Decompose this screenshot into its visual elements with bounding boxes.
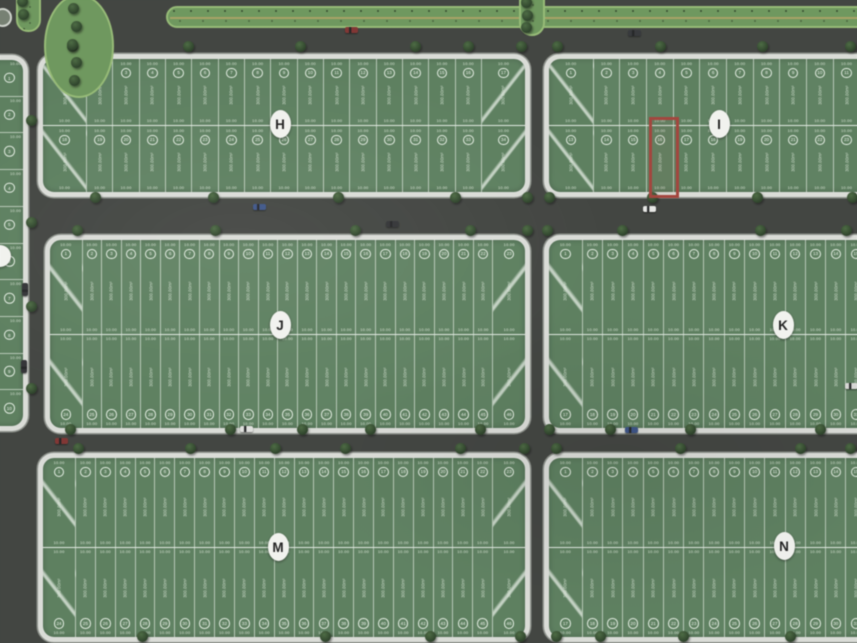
plot-M-39[interactable]: 10.0039300.00m²10.00 bbox=[354, 548, 374, 637]
plot-I-14[interactable]: 10.0014300.00m²10.00 bbox=[594, 126, 621, 192]
plot-K-13[interactable]: 10.0013300.00m²10.00 bbox=[806, 240, 826, 334]
plot-J-18[interactable]: 10.0018300.00m²10.00 bbox=[396, 240, 416, 334]
plot-width-label: 10.00 bbox=[179, 631, 190, 635]
plot-M-30[interactable]: 10.0030300.00m²10.00 bbox=[175, 548, 195, 637]
plot-J-17[interactable]: 10.0017300.00m²10.00 bbox=[376, 240, 396, 334]
plot-width-label: 10.00 bbox=[380, 328, 391, 332]
plot-J-34[interactable]: 10.0034300.00m²10.00 bbox=[259, 335, 279, 429]
plot-M-13[interactable]: 10.0013300.00m²10.00 bbox=[295, 458, 315, 547]
plot-M-15[interactable]: 10.0015300.00m²10.00 bbox=[334, 458, 354, 547]
plot-H-28[interactable]: 10.0028300.00m²10.00 bbox=[324, 126, 350, 192]
plot-area-label: 300.00m² bbox=[833, 497, 838, 516]
plot-left-9[interactable]: 910.00 bbox=[0, 354, 23, 391]
plot-H-24[interactable]: 10.0024300.00m²10.00 bbox=[219, 126, 245, 192]
plot-width-label: 10.00 bbox=[378, 631, 389, 635]
plot-H-12[interactable]: 10.0012300.00m²10.00 bbox=[350, 59, 376, 125]
plot-M-5[interactable]: 10.005300.00m²10.00 bbox=[136, 458, 156, 547]
tree-icon bbox=[595, 631, 606, 642]
plot-N-23[interactable]: 10.0023300.00m²10.00 bbox=[684, 548, 704, 637]
plot-N-17[interactable]: 10.0017300.00m²10.00 bbox=[549, 548, 583, 637]
plot-H-7[interactable]: 10.007300.00m²10.00 bbox=[219, 59, 245, 125]
plot-I-13[interactable]: 10.0013300.00m²10.00 bbox=[549, 126, 594, 192]
plot-I-11[interactable]: 10.0011300.00m²10.00 bbox=[834, 59, 857, 125]
plot-M-1[interactable]: 10.001300.00m²10.00 bbox=[43, 458, 76, 547]
plot-M-32[interactable]: 10.0032300.00m²10.00 bbox=[215, 548, 235, 637]
plot-number: 21 bbox=[458, 467, 469, 478]
plot-width-label: 10.00 bbox=[769, 631, 780, 635]
plot-J-38[interactable]: 10.0038300.00m²10.00 bbox=[337, 335, 357, 429]
plot-J-41[interactable]: 10.0041300.00m²10.00 bbox=[396, 335, 416, 429]
plot-width-label: 10.00 bbox=[60, 328, 71, 332]
plot-H-19[interactable]: 10.0019300.00m²10.00 bbox=[87, 126, 113, 192]
plot-width-label: 10.00 bbox=[830, 631, 841, 635]
plot-K-23[interactable]: 10.0023300.00m²10.00 bbox=[684, 335, 704, 429]
plot-area-label: 300.00m² bbox=[813, 497, 818, 516]
plot-width-label: 10.00 bbox=[648, 631, 659, 635]
plot-number: 25 bbox=[252, 135, 263, 146]
plot-K-9[interactable]: 10.009300.00m²10.00 bbox=[725, 240, 745, 334]
plot-J-45[interactable]: 10.0045300.00m²10.00 bbox=[474, 335, 494, 429]
plot-M-35[interactable]: 10.0035300.00m²10.00 bbox=[275, 548, 295, 637]
plot-N-22[interactable]: 10.0022300.00m²10.00 bbox=[664, 548, 684, 637]
plot-K-27[interactable]: 10.0027300.00m²10.00 bbox=[765, 335, 785, 429]
plot-N-4[interactable]: 10.004300.00m²10.00 bbox=[623, 458, 643, 547]
plot-N-15[interactable]: 10.0015300.00m²10.00 bbox=[846, 458, 857, 547]
plot-number: 9 bbox=[4, 366, 15, 377]
plot-number: 22 bbox=[815, 135, 826, 146]
plot-J-5[interactable]: 10.005300.00m²10.00 bbox=[141, 240, 161, 334]
plot-I-1[interactable]: 10.001300.00m²10.00 bbox=[549, 59, 594, 125]
plot-K-3[interactable]: 10.003300.00m²10.00 bbox=[603, 240, 623, 334]
plot-number: 5 bbox=[648, 249, 659, 260]
plot-N-8[interactable]: 10.008300.00m²10.00 bbox=[704, 458, 724, 547]
plot-H-16[interactable]: 10.0016300.00m²10.00 bbox=[456, 59, 482, 125]
plot-M-2[interactable]: 10.002300.00m²10.00 bbox=[76, 458, 96, 547]
plot-J-22[interactable]: 10.0022300.00m²10.00 bbox=[474, 240, 494, 334]
plot-H-29[interactable]: 10.0029300.00m²10.00 bbox=[350, 126, 376, 192]
plot-K-24[interactable]: 10.0024300.00m²10.00 bbox=[704, 335, 724, 429]
plot-N-27[interactable]: 10.0027300.00m²10.00 bbox=[765, 548, 785, 637]
plot-J-10[interactable]: 10.0010300.00m²10.00 bbox=[239, 240, 259, 334]
plot-left-3[interactable]: 310.00 bbox=[0, 133, 23, 170]
plot-width-label: 10.00 bbox=[410, 129, 421, 133]
plot-M-16[interactable]: 10.0016300.00m²10.00 bbox=[354, 458, 374, 547]
plot-I-8[interactable]: 10.008300.00m²10.00 bbox=[754, 59, 781, 125]
plot-I-9[interactable]: 10.009300.00m²10.00 bbox=[780, 59, 807, 125]
plot-M-26[interactable]: 10.0026300.00m²10.00 bbox=[96, 548, 116, 637]
plot-M-10[interactable]: 10.0010300.00m²10.00 bbox=[235, 458, 255, 547]
plot-H-18[interactable]: 10.0018300.00m²10.00 bbox=[43, 126, 87, 192]
plot-I-20[interactable]: 10.0020300.00m²10.00 bbox=[754, 126, 781, 192]
tree-icon bbox=[365, 424, 376, 435]
plot-K-22[interactable]: 10.0022300.00m²10.00 bbox=[664, 335, 684, 429]
plot-K-14[interactable]: 10.0014300.00m²10.00 bbox=[826, 240, 846, 334]
plot-M-36[interactable]: 10.0036300.00m²10.00 bbox=[295, 548, 315, 637]
plot-M-17[interactable]: 10.0017300.00m²10.00 bbox=[374, 458, 394, 547]
plot-number: 26 bbox=[749, 618, 760, 629]
plot-M-3[interactable]: 10.003300.00m²10.00 bbox=[96, 458, 116, 547]
plot-width-label: 10.00 bbox=[106, 422, 117, 426]
plot-N-2[interactable]: 10.002300.00m²10.00 bbox=[583, 458, 603, 547]
plot-J-26[interactable]: 10.0026300.00m²10.00 bbox=[102, 335, 122, 429]
plot-M-29[interactable]: 10.0029300.00m²10.00 bbox=[155, 548, 175, 637]
plot-J-32[interactable]: 10.0032300.00m²10.00 bbox=[220, 335, 240, 429]
plot-M-18[interactable]: 10.0018300.00m²10.00 bbox=[394, 458, 414, 547]
plot-H-5[interactable]: 10.005300.00m²10.00 bbox=[166, 59, 192, 125]
plot-M-25[interactable]: 10.0025300.00m²10.00 bbox=[76, 548, 96, 637]
plot-area-label: 300.00m² bbox=[793, 578, 798, 597]
plot-K-25[interactable]: 10.0025300.00m²10.00 bbox=[725, 335, 745, 429]
plot-K-2[interactable]: 10.002300.00m²10.00 bbox=[583, 240, 603, 334]
plot-J-30[interactable]: 10.0030300.00m²10.00 bbox=[180, 335, 200, 429]
plot-number: 31 bbox=[204, 409, 215, 420]
plot-I-2[interactable]: 10.002300.00m²10.00 bbox=[594, 59, 621, 125]
plot-width-label: 10.00 bbox=[504, 328, 515, 332]
plot-number: 27 bbox=[305, 135, 316, 146]
plot-M-40[interactable]: 10.0040300.00m²10.00 bbox=[374, 548, 394, 637]
plot-H-6[interactable]: 10.006300.00m²10.00 bbox=[192, 59, 218, 125]
plot-K-10[interactable]: 10.0010300.00m²10.00 bbox=[745, 240, 765, 334]
plot-width-label: 10.00 bbox=[560, 550, 571, 554]
plot-width-label: 10.00 bbox=[384, 129, 395, 133]
plot-M-33[interactable]: 10.0033300.00m²10.00 bbox=[235, 548, 255, 637]
plot-area-label: 300.00m² bbox=[630, 282, 635, 301]
plot-J-1[interactable]: 10.001300.00m²10.00 bbox=[50, 240, 83, 334]
plot-number: 33 bbox=[463, 135, 474, 146]
plot-I-23[interactable]: 10.0023300.00m²10.00 bbox=[834, 126, 857, 192]
plot-M-20[interactable]: 10.0020300.00m²10.00 bbox=[434, 458, 454, 547]
plot-J-6[interactable]: 10.006300.00m²10.00 bbox=[161, 240, 181, 334]
plot-number: 7 bbox=[689, 467, 700, 478]
plot-H-20[interactable]: 10.0020300.00m²10.00 bbox=[113, 126, 139, 192]
plot-N-24[interactable]: 10.0024300.00m²10.00 bbox=[704, 548, 724, 637]
plot-width-label: 10.00 bbox=[709, 422, 720, 426]
plot-H-32[interactable]: 10.0032300.00m²10.00 bbox=[429, 126, 455, 192]
plot-M-31[interactable]: 10.0031300.00m²10.00 bbox=[195, 548, 215, 637]
plot-N-19[interactable]: 10.0019300.00m²10.00 bbox=[603, 548, 623, 637]
plot-width-label: 10.00 bbox=[338, 550, 349, 554]
plot-area-label: 300.00m² bbox=[162, 578, 167, 597]
plot-area-label: 300.00m² bbox=[148, 282, 153, 301]
tree-icon bbox=[340, 443, 351, 454]
block-N: 10.001300.00m²10.0010.002300.00m²10.0010… bbox=[544, 453, 857, 642]
plot-M-22[interactable]: 10.0022300.00m²10.00 bbox=[473, 458, 493, 547]
plot-area-label: 300.00m² bbox=[168, 282, 173, 301]
plot-K-4[interactable]: 10.004300.00m²10.00 bbox=[623, 240, 643, 334]
plot-M-38[interactable]: 10.0038300.00m²10.00 bbox=[334, 548, 354, 637]
plot-H-13[interactable]: 10.0013300.00m²10.00 bbox=[377, 59, 403, 125]
plot-M-34[interactable]: 10.0034300.00m²10.00 bbox=[255, 548, 275, 637]
plot-H-8[interactable]: 10.008300.00m²10.00 bbox=[245, 59, 271, 125]
plot-width-label: 10.00 bbox=[418, 461, 429, 465]
plot-J-16[interactable]: 10.0016300.00m²10.00 bbox=[356, 240, 376, 334]
plot-width-label: 10.00 bbox=[279, 62, 290, 66]
plot-H-25[interactable]: 10.0025300.00m²10.00 bbox=[245, 126, 271, 192]
plot-M-45[interactable]: 10.0045300.00m²10.00 bbox=[473, 548, 493, 637]
plot-N-28[interactable]: 10.0028300.00m²10.00 bbox=[786, 548, 806, 637]
plot-number: 28 bbox=[145, 409, 156, 420]
tree-icon bbox=[69, 75, 80, 86]
tree-icon bbox=[71, 21, 82, 32]
plot-J-35[interactable]: 10.0035300.00m²10.00 bbox=[278, 335, 298, 429]
plot-I-10[interactable]: 10.0010300.00m²10.00 bbox=[807, 59, 834, 125]
plot-I-3[interactable]: 10.003300.00m²10.00 bbox=[620, 59, 647, 125]
plot-width-label: 10.00 bbox=[298, 541, 309, 545]
plot-width-label: 10.00 bbox=[628, 62, 639, 66]
plot-M-7[interactable]: 10.007300.00m²10.00 bbox=[175, 458, 195, 547]
plot-number: 17 bbox=[681, 135, 692, 146]
plot-K-1[interactable]: 10.001300.00m²10.00 bbox=[549, 240, 583, 334]
plot-width-label: 10.00 bbox=[810, 550, 821, 554]
plot-area-label: 300.00m² bbox=[507, 367, 512, 386]
plot-H-21[interactable]: 10.0021300.00m²10.00 bbox=[140, 126, 166, 192]
plot-number: 25 bbox=[80, 618, 91, 629]
plot-N-1[interactable]: 10.001300.00m²10.00 bbox=[549, 458, 583, 547]
plot-J-44[interactable]: 10.0044300.00m²10.00 bbox=[454, 335, 474, 429]
plot-M-6[interactable]: 10.006300.00m²10.00 bbox=[155, 458, 175, 547]
plot-J-13[interactable]: 10.0013300.00m²10.00 bbox=[298, 240, 318, 334]
plot-left-8[interactable]: 810.00 bbox=[0, 317, 23, 354]
plot-J-43[interactable]: 10.0043300.00m²10.00 bbox=[435, 335, 455, 429]
plot-N-5[interactable]: 10.005300.00m²10.00 bbox=[644, 458, 664, 547]
plot-J-29[interactable]: 10.0029300.00m²10.00 bbox=[161, 335, 181, 429]
plot-left-10[interactable]: 1010.00 bbox=[0, 390, 23, 426]
plot-K-28[interactable]: 10.0028300.00m²10.00 bbox=[786, 335, 806, 429]
plot-H-15[interactable]: 10.0015300.00m²10.00 bbox=[429, 59, 455, 125]
plot-N-30[interactable]: 10.0030300.00m²10.00 bbox=[826, 548, 846, 637]
plot-H-3[interactable]: 10.003300.00m²10.00 bbox=[113, 59, 139, 125]
plot-H-31[interactable]: 10.0031300.00m²10.00 bbox=[403, 126, 429, 192]
block-label-text-K: K bbox=[778, 318, 788, 333]
plot-left-4[interactable]: 410.00 bbox=[0, 170, 23, 207]
plot-left-2[interactable]: 210.00 bbox=[0, 97, 23, 134]
plot-J-20[interactable]: 10.0020300.00m²10.00 bbox=[435, 240, 455, 334]
plot-number: 11 bbox=[263, 249, 274, 260]
plot-width-label: 10.00 bbox=[120, 541, 131, 545]
plot-H-33[interactable]: 10.0033300.00m²10.00 bbox=[456, 126, 482, 192]
plot-H-23[interactable]: 10.0023300.00m²10.00 bbox=[192, 126, 218, 192]
plot-number: 8 bbox=[709, 467, 720, 478]
plot-number: 21 bbox=[458, 249, 469, 260]
plot-K-6[interactable]: 10.006300.00m²10.00 bbox=[664, 240, 684, 334]
plot-I-15[interactable]: 10.0015300.00m²10.00 bbox=[620, 126, 647, 192]
block-M-row2: 10.0024300.00m²10.0010.0025300.00m²10.00… bbox=[43, 547, 525, 637]
plot-J-25[interactable]: 10.0025300.00m²10.00 bbox=[83, 335, 103, 429]
plot-J-40[interactable]: 10.0040300.00m²10.00 bbox=[376, 335, 396, 429]
plot-M-37[interactable]: 10.0037300.00m²10.00 bbox=[314, 548, 334, 637]
plot-number: 6 bbox=[200, 68, 211, 79]
plot-I-4[interactable]: 10.004300.00m²10.00 bbox=[647, 59, 674, 125]
plot-H-22[interactable]: 10.0022300.00m²10.00 bbox=[166, 126, 192, 192]
plot-M-9[interactable]: 10.009300.00m²10.00 bbox=[215, 458, 235, 547]
plot-K-19[interactable]: 10.0019300.00m²10.00 bbox=[603, 335, 623, 429]
plot-I-5[interactable]: 10.005300.00m²10.00 bbox=[674, 59, 701, 125]
plot-J-39[interactable]: 10.0039300.00m²10.00 bbox=[356, 335, 376, 429]
plot-N-7[interactable]: 10.007300.00m²10.00 bbox=[684, 458, 704, 547]
plot-M-27[interactable]: 10.0027300.00m²10.00 bbox=[116, 548, 136, 637]
plot-K-31[interactable]: 10.0031300.00m²10.00 bbox=[846, 335, 857, 429]
plot-K-5[interactable]: 10.005300.00m²10.00 bbox=[644, 240, 664, 334]
plot-width-label: 10.00 bbox=[681, 119, 692, 123]
plot-area-label: 300.00m² bbox=[631, 153, 636, 172]
plot-N-20[interactable]: 10.0020300.00m²10.00 bbox=[623, 548, 643, 637]
plot-M-43[interactable]: 10.0043300.00m²10.00 bbox=[434, 548, 454, 637]
plot-H-17[interactable]: 10.0017300.00m²10.00 bbox=[482, 59, 525, 125]
plot-N-29[interactable]: 10.0029300.00m²10.00 bbox=[806, 548, 826, 637]
selected-plot-highlight[interactable] bbox=[649, 117, 679, 198]
plot-M-42[interactable]: 10.0042300.00m²10.00 bbox=[414, 548, 434, 637]
plot-K-21[interactable]: 10.0021300.00m²10.00 bbox=[644, 335, 664, 429]
plot-left-1[interactable]: 110.00 bbox=[0, 60, 23, 97]
plot-N-25[interactable]: 10.0025300.00m²10.00 bbox=[725, 548, 745, 637]
plot-N-18[interactable]: 10.0018300.00m²10.00 bbox=[583, 548, 603, 637]
plot-area-label: 300.00m² bbox=[630, 497, 635, 516]
plot-area-label: 300.00m² bbox=[162, 497, 167, 516]
plot-H-11[interactable]: 10.0011300.00m²10.00 bbox=[324, 59, 350, 125]
plot-I-22[interactable]: 10.0022300.00m²10.00 bbox=[807, 126, 834, 192]
plot-H-4[interactable]: 10.004300.00m²10.00 bbox=[140, 59, 166, 125]
plot-H-27[interactable]: 10.0027300.00m²10.00 bbox=[298, 126, 324, 192]
plot-width-label: 10.00 bbox=[200, 186, 211, 190]
plot-I-7[interactable]: 10.007300.00m²10.00 bbox=[727, 59, 754, 125]
plot-M-8[interactable]: 10.008300.00m²10.00 bbox=[195, 458, 215, 547]
plot-J-27[interactable]: 10.0027300.00m²10.00 bbox=[122, 335, 142, 429]
plot-K-20[interactable]: 10.0020300.00m²10.00 bbox=[623, 335, 643, 429]
plot-N-3[interactable]: 10.003300.00m²10.00 bbox=[603, 458, 623, 547]
car-icon bbox=[240, 426, 253, 432]
plot-N-31[interactable]: 10.0031300.00m²10.00 bbox=[846, 548, 857, 637]
plot-width-label: 10.00 bbox=[688, 243, 699, 247]
plot-J-2[interactable]: 10.002300.00m²10.00 bbox=[83, 240, 103, 334]
plot-J-37[interactable]: 10.0037300.00m²10.00 bbox=[317, 335, 337, 429]
plot-K-18[interactable]: 10.0018300.00m²10.00 bbox=[583, 335, 603, 429]
plot-J-42[interactable]: 10.0042300.00m²10.00 bbox=[415, 335, 435, 429]
plot-width-label: 10.00 bbox=[749, 631, 760, 635]
plot-number: 33 bbox=[243, 409, 254, 420]
plot-area-label: 300.00m² bbox=[732, 367, 737, 386]
plot-number: 8 bbox=[252, 68, 263, 79]
plot-J-3[interactable]: 10.003300.00m²10.00 bbox=[102, 240, 122, 334]
plot-M-4[interactable]: 10.004300.00m²10.00 bbox=[116, 458, 136, 547]
plot-N-26[interactable]: 10.0026300.00m²10.00 bbox=[745, 548, 765, 637]
plot-M-21[interactable]: 10.0021300.00m²10.00 bbox=[453, 458, 473, 547]
plot-H-14[interactable]: 10.0014300.00m²10.00 bbox=[403, 59, 429, 125]
plot-N-9[interactable]: 10.009300.00m²10.00 bbox=[725, 458, 745, 547]
plot-area-label: 300.00m² bbox=[305, 282, 310, 301]
plot-N-13[interactable]: 10.0013300.00m²10.00 bbox=[806, 458, 826, 547]
plot-number: 5 bbox=[681, 68, 692, 79]
tree-icon bbox=[521, 22, 532, 33]
plot-I-19[interactable]: 10.0019300.00m²10.00 bbox=[727, 126, 754, 192]
plot-J-14[interactable]: 10.0014300.00m²10.00 bbox=[317, 240, 337, 334]
plot-width-label: 10.00 bbox=[851, 541, 857, 545]
plot-M-23[interactable]: 10.0023300.00m²10.00 bbox=[493, 458, 525, 547]
plot-H-34[interactable]: 10.0034300.00m²10.00 bbox=[482, 126, 525, 192]
plot-N-14[interactable]: 10.0014300.00m²10.00 bbox=[826, 458, 846, 547]
tree-icon bbox=[208, 192, 219, 203]
plot-area-label: 300.00m² bbox=[63, 367, 68, 386]
plot-K-7[interactable]: 10.007300.00m²10.00 bbox=[684, 240, 704, 334]
plot-M-28[interactable]: 10.0028300.00m²10.00 bbox=[136, 548, 156, 637]
plot-width-label: 10.00 bbox=[729, 328, 740, 332]
plot-M-24[interactable]: 10.0024300.00m²10.00 bbox=[43, 548, 76, 637]
plot-K-8[interactable]: 10.008300.00m²10.00 bbox=[704, 240, 724, 334]
site-plan-scene: 10.001300.00m²10.0010.002300.00m²10.0010… bbox=[0, 0, 857, 643]
plot-width-label: 10.00 bbox=[86, 243, 97, 247]
plot-K-15[interactable]: 10.0015300.00m²10.00 bbox=[846, 240, 857, 334]
plot-J-24[interactable]: 10.0024300.00m²10.00 bbox=[50, 335, 83, 429]
plot-J-15[interactable]: 10.0015300.00m²10.00 bbox=[337, 240, 357, 334]
plot-J-28[interactable]: 10.0028300.00m²10.00 bbox=[141, 335, 161, 429]
plot-K-17[interactable]: 10.0017300.00m²10.00 bbox=[549, 335, 583, 429]
plot-K-29[interactable]: 10.0029300.00m²10.00 bbox=[806, 335, 826, 429]
plot-J-23[interactable]: 10.0023300.00m²10.00 bbox=[493, 240, 525, 334]
plot-M-44[interactable]: 10.0044300.00m²10.00 bbox=[453, 548, 473, 637]
plot-M-41[interactable]: 10.0041300.00m²10.00 bbox=[394, 548, 414, 637]
plot-H-10[interactable]: 10.0010300.00m²10.00 bbox=[298, 59, 324, 125]
plot-width-label: 10.00 bbox=[86, 422, 97, 426]
plot-J-8[interactable]: 10.008300.00m²10.00 bbox=[200, 240, 220, 334]
plot-area-label: 300.00m² bbox=[691, 282, 696, 301]
plot-I-21[interactable]: 10.0021300.00m²10.00 bbox=[780, 126, 807, 192]
plot-width-label: 10.00 bbox=[398, 550, 409, 554]
plot-area-label: 300.00m² bbox=[128, 282, 133, 301]
plot-width-label: 10.00 bbox=[165, 337, 176, 341]
plot-width-label: 10.00 bbox=[10, 209, 21, 213]
plot-J-36[interactable]: 10.0036300.00m²10.00 bbox=[298, 335, 318, 429]
plot-width-label: 10.00 bbox=[219, 541, 230, 545]
plot-J-21[interactable]: 10.0021300.00m²10.00 bbox=[454, 240, 474, 334]
plot-area-label: 300.00m² bbox=[480, 578, 485, 597]
plot-width-label: 10.00 bbox=[810, 243, 821, 247]
plot-left-7[interactable]: 710.00 bbox=[0, 280, 23, 317]
plot-M-14[interactable]: 10.0014300.00m²10.00 bbox=[314, 458, 334, 547]
plot-N-10[interactable]: 10.0010300.00m²10.00 bbox=[745, 458, 765, 547]
plot-N-6[interactable]: 10.006300.00m²10.00 bbox=[664, 458, 684, 547]
plot-M-19[interactable]: 10.0019300.00m²10.00 bbox=[414, 458, 434, 547]
plot-H-30[interactable]: 10.0030300.00m²10.00 bbox=[377, 126, 403, 192]
plot-J-33[interactable]: 10.0033300.00m²10.00 bbox=[239, 335, 259, 429]
plot-M-11[interactable]: 10.0011300.00m²10.00 bbox=[255, 458, 275, 547]
plot-J-9[interactable]: 10.009300.00m²10.00 bbox=[220, 240, 240, 334]
plot-number: 20 bbox=[628, 618, 639, 629]
plot-J-31[interactable]: 10.0031300.00m²10.00 bbox=[200, 335, 220, 429]
plot-width-label: 10.00 bbox=[80, 550, 91, 554]
plot-J-7[interactable]: 10.007300.00m²10.00 bbox=[180, 240, 200, 334]
plot-left-5[interactable]: 510.00 bbox=[0, 207, 23, 244]
plot-width-label: 10.00 bbox=[94, 129, 105, 133]
plot-area-label: 300.00m² bbox=[737, 86, 742, 105]
plot-width-label: 10.00 bbox=[399, 243, 410, 247]
plot-K-26[interactable]: 10.0026300.00m²10.00 bbox=[745, 335, 765, 429]
plot-J-19[interactable]: 10.0019300.00m²10.00 bbox=[415, 240, 435, 334]
plot-M-46[interactable]: 10.0046300.00m²10.00 bbox=[493, 548, 525, 637]
plot-width-label: 10.00 bbox=[282, 243, 293, 247]
plot-number: 11 bbox=[770, 467, 781, 478]
plot-width-label: 10.00 bbox=[688, 337, 699, 341]
plot-width-label: 10.00 bbox=[147, 186, 158, 190]
plot-width-label: 10.00 bbox=[841, 186, 852, 190]
plot-J-4[interactable]: 10.004300.00m²10.00 bbox=[122, 240, 142, 334]
plot-N-21[interactable]: 10.0021300.00m²10.00 bbox=[644, 548, 664, 637]
tree-icon bbox=[544, 192, 555, 203]
tree-icon bbox=[73, 443, 84, 454]
plot-width-label: 10.00 bbox=[252, 129, 263, 133]
plot-K-30[interactable]: 10.0030300.00m²10.00 bbox=[826, 335, 846, 429]
plot-width-label: 10.00 bbox=[204, 328, 215, 332]
plot-area-label: 300.00m² bbox=[772, 282, 777, 301]
plot-J-46[interactable]: 10.0046300.00m²10.00 bbox=[493, 335, 525, 429]
